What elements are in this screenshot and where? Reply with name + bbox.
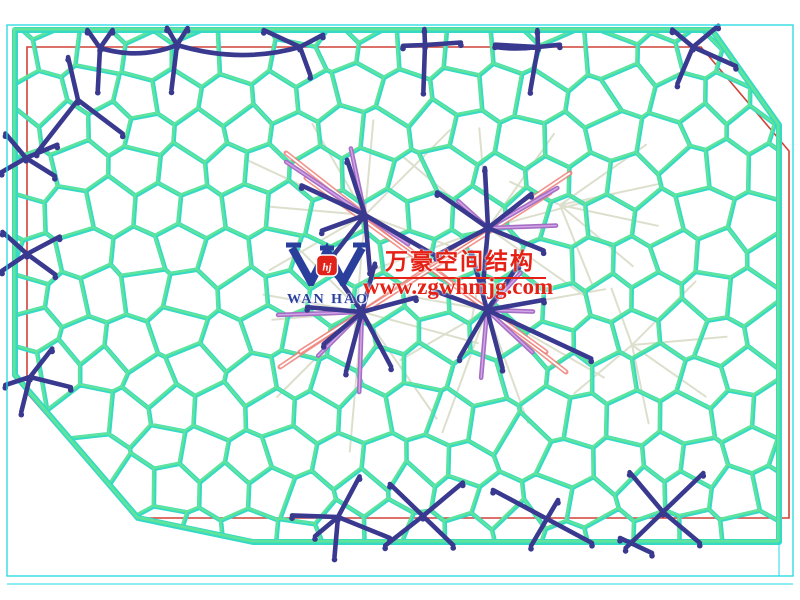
- cad-drawing-canvas: hj WAN HAO 万豪空间结构 www.zgwhmjg.com: [0, 0, 800, 600]
- structural-mesh-plan: [0, 0, 800, 600]
